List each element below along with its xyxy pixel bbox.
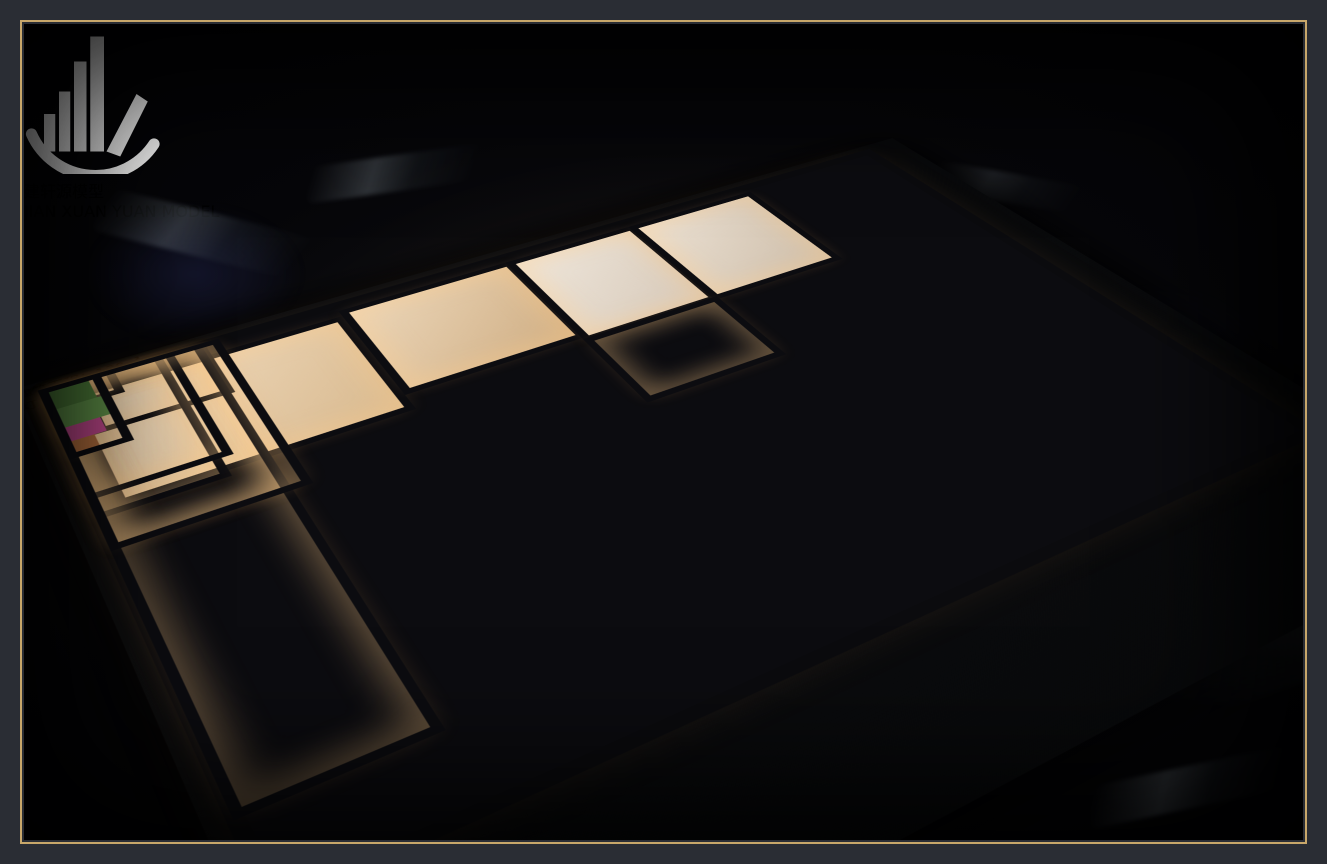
brand-logo-buildings-swoosh: [24, 24, 174, 174]
model-photo: 建筑面积：130㎡ 灯光控制: [24, 24, 1303, 840]
photo-canvas: 建筑面积：130㎡ 灯光控制: [0, 0, 1327, 864]
crinkled-foil-reflection: [1082, 741, 1303, 830]
gold-frame-border: 建筑面积：130㎡ 灯光控制: [20, 20, 1307, 844]
